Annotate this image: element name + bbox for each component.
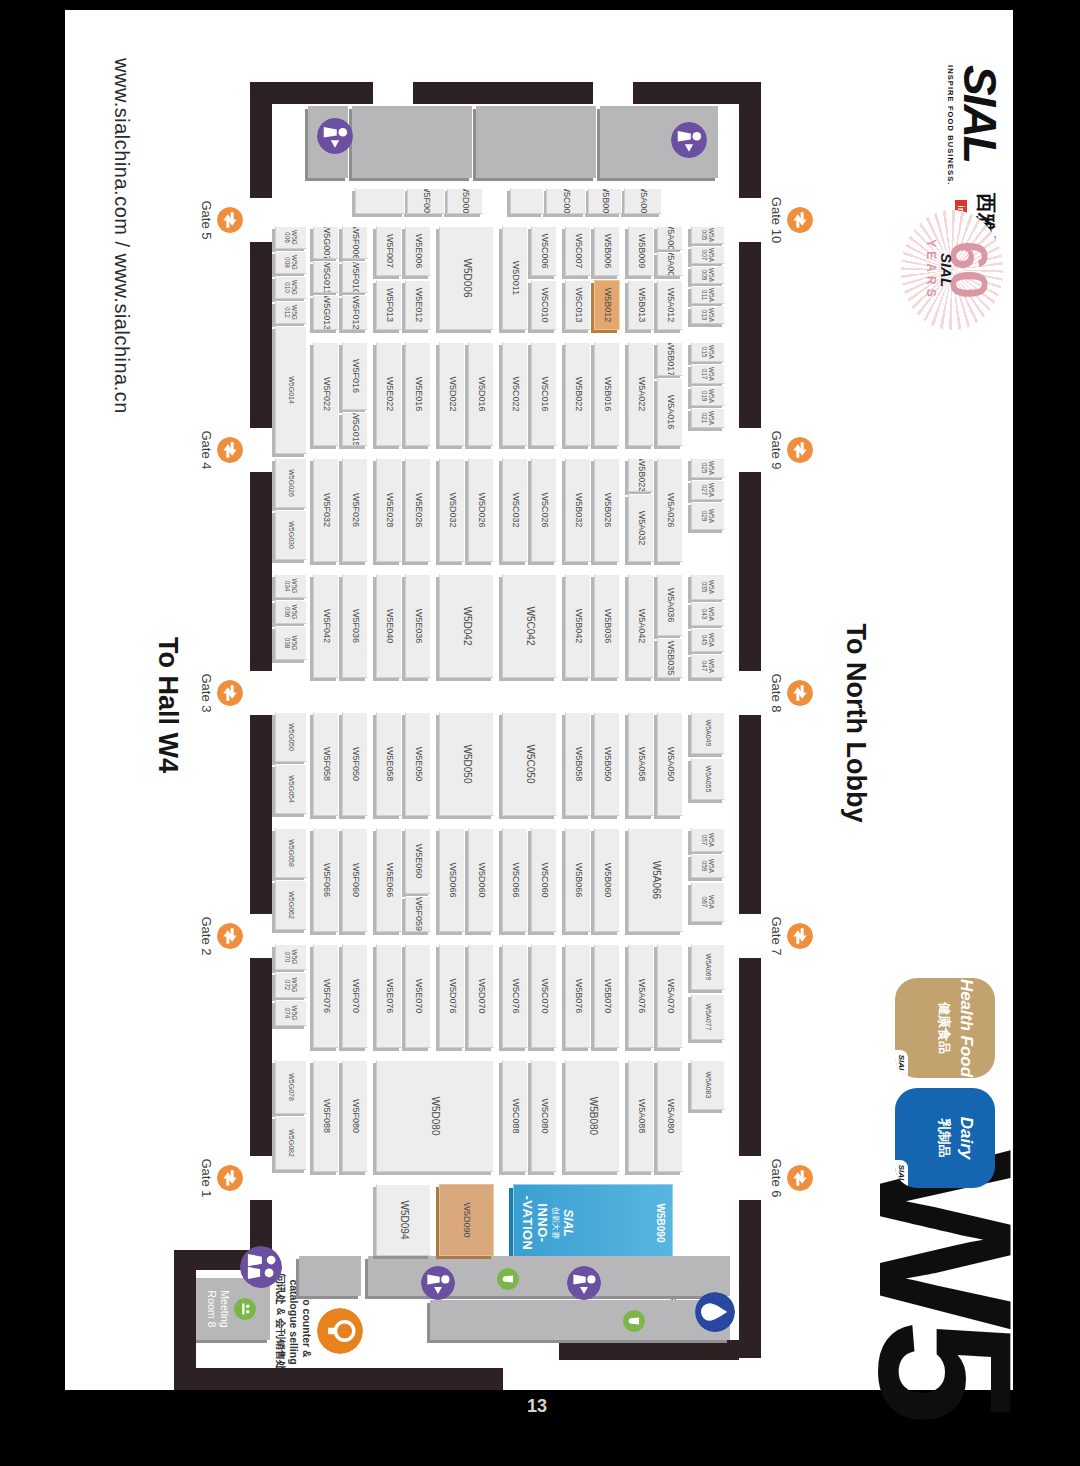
booth-W5A016: W5A016: [657, 378, 683, 446]
booth-W5F050: W5F050: [342, 712, 368, 816]
booth-W5C006: W5C006: [531, 226, 557, 276]
booth-W5A015: W5A015: [691, 342, 725, 362]
booth-W5F036: W5F036: [342, 574, 368, 678]
service-block: [430, 1300, 730, 1340]
gate-label: Gate 4: [199, 430, 214, 469]
booth-W5D066: W5D066: [439, 828, 465, 932]
gate-gate-5: Gate 5: [199, 190, 243, 250]
service-block: [299, 1256, 361, 1296]
innovation-line2: -VATION: [520, 1195, 535, 1250]
gate-gate-7: Gate 7: [769, 906, 813, 966]
booth-W5A066: W5A066: [628, 828, 683, 932]
booth-W5C001: W5C001: [546, 188, 586, 214]
booth-W5G058: W5G058: [275, 828, 307, 878]
booth-W5B026: W5B026: [594, 458, 620, 562]
dairy-cn-label: 乳制品: [935, 1088, 953, 1188]
booth-W5A059: W5A059: [691, 854, 725, 878]
booth-W5F007: W5F007: [376, 226, 402, 276]
wall-segment: [739, 472, 761, 671]
booth-W5F010: W5F010: [342, 261, 368, 293]
booth-W5A042: W5A042: [628, 574, 654, 678]
gate-label: Gate 6: [769, 1158, 784, 1197]
booth-W5F070: W5F070: [342, 944, 368, 1048]
booth-W5E016: W5E016: [405, 342, 431, 446]
meeting-room-label: Meeting Room 8: [206, 1283, 230, 1335]
booth-W5A011: W5A011: [691, 286, 725, 304]
restroom-person-icon: [421, 1266, 455, 1300]
booth-W5F022: W5F022: [313, 342, 339, 446]
wall-segment: [413, 82, 593, 104]
booth-W5C050: W5C050: [502, 712, 557, 816]
gate-swap-icon: [787, 680, 813, 706]
booth-W5F066: W5F066: [313, 828, 339, 932]
booth-W5A035: W5A035: [691, 574, 725, 600]
anniversary-sial: SIAL: [938, 210, 955, 330]
booth-W5A013: W5A013: [691, 306, 725, 324]
booth-W5G036: W5G036: [275, 600, 307, 624]
booth-W5D016: W5D016: [468, 342, 494, 446]
booth-W5E058: W5E058: [376, 712, 402, 816]
booth-W5G015: W5G015: [342, 412, 368, 446]
booth-W5C060: W5C060: [531, 828, 557, 932]
booth-W5A027: W5A027: [691, 480, 725, 500]
booth-W5C010: W5C010: [531, 280, 557, 330]
service-block: [352, 106, 472, 178]
gate-gate-3: Gate 3: [199, 663, 243, 723]
booth-W5E070: W5E070: [405, 944, 431, 1048]
booth-W5F006: W5F006: [342, 226, 368, 259]
booth-W5A017: W5A017: [691, 364, 725, 384]
innovation-sial: SIAL: [561, 1195, 575, 1250]
booth-W5G014: W5G014: [275, 326, 307, 454]
booth-W5G034: W5G034: [275, 574, 307, 598]
wall-segment: [633, 82, 761, 104]
booth-W5G006: W5G006: [275, 226, 307, 249]
dairy-label: Dairy: [957, 1088, 975, 1188]
booth-W5G038: W5G038: [275, 626, 307, 660]
info-counter-bulb-icon: [317, 1308, 363, 1354]
booth-W5F016: W5F016: [342, 342, 368, 410]
booth-W5A012: W5A012: [657, 280, 683, 330]
anniversary-years: YEARS: [924, 210, 938, 330]
to-hall-w4-label: To Hall W4: [152, 585, 183, 825]
snack-bar-icon: [623, 1310, 645, 1332]
website-urls: www.sialchina.com / www.sialchina.cn: [110, 58, 133, 414]
booth-W5D026: W5D026: [468, 458, 494, 562]
booth-W5C007: W5C007: [565, 226, 591, 276]
gate-gate-10: Gate 10: [769, 190, 813, 250]
booth-W5F032: W5F032: [313, 458, 339, 562]
booth-W5B022: W5B022: [565, 342, 591, 446]
booth-W5A021: W5A021: [691, 408, 725, 428]
booth-W5A080: W5A080: [657, 1060, 683, 1172]
booth-W5C013: W5C013: [565, 280, 591, 330]
booth-W5F058: W5F058: [313, 712, 339, 816]
booth-W5G078: W5G078: [275, 1060, 307, 1114]
health-food-cn-label: 健康食品: [935, 978, 953, 1078]
gate-label: Gate 9: [769, 430, 784, 469]
booth-W5D022: W5D022: [439, 342, 465, 446]
booth-W5E026: W5E026: [405, 458, 431, 562]
booth-W5A058: W5A058: [628, 712, 654, 816]
hall-floor-plan: SIAL INSPIRE FOOD BUSINESS. 西雅展 in China…: [65, 10, 1013, 1390]
innovation-line1: INNO-: [535, 1195, 550, 1250]
gate-swap-icon: [787, 207, 813, 233]
restroom-people-icon: [240, 1246, 282, 1288]
booth-W5A057: W5A057: [691, 828, 725, 852]
booth-W5E036: W5E036: [405, 574, 431, 678]
booth-W5D076: W5D076: [439, 944, 465, 1048]
wall-segment: [250, 1200, 272, 1250]
booth-W5D070: W5D070: [468, 944, 494, 1048]
booth-W5G011: W5G011: [313, 261, 339, 293]
booth-W5E050: W5E050: [405, 712, 431, 816]
booth-W5A069: W5A069: [691, 944, 725, 990]
booth-W5F042: W5F042: [313, 574, 339, 678]
booth-W5D006: W5D006: [439, 226, 494, 330]
booth-W5A070: W5A070: [657, 944, 683, 1048]
booth-W5B017: W5B017: [657, 342, 683, 376]
booth-W5C070: W5C070: [531, 944, 557, 1048]
restroom-person-icon: [317, 118, 353, 154]
health-food-label: Health Food: [957, 978, 975, 1078]
booth-W5B016: W5B016: [594, 342, 620, 446]
booth-W5E076: W5E076: [376, 944, 402, 1048]
sial-notch: SIAL: [895, 1050, 908, 1078]
booth-W5A007: W5A007: [691, 246, 725, 264]
booth-W5F080: W5F080: [342, 1060, 368, 1172]
gate-gate-6: Gate 6: [769, 1148, 813, 1208]
booth-W5G054: W5G054: [275, 764, 307, 814]
service-block: [476, 106, 596, 178]
wall-segment: [250, 958, 272, 1156]
booth-W5A043: W5A043: [691, 602, 725, 626]
gate-swap-icon: [217, 207, 243, 233]
innovation-cn: 创新大赛: [550, 1195, 561, 1250]
gate-swap-icon: [787, 437, 813, 463]
gate-label: Gate 10: [769, 197, 784, 243]
gate-label: Gate 7: [769, 916, 784, 955]
booth-W5E066: W5E066: [376, 828, 402, 932]
booth-W5A006: W5A006: [657, 226, 683, 250]
booth-W5D090: W5D090: [439, 1184, 494, 1256]
booth-W5F060: W5F060: [342, 828, 368, 932]
booth-W5G074: W5G074: [275, 1000, 307, 1026]
booth-W5G012: W5G012: [275, 301, 307, 324]
booth-W5E012: W5E012: [405, 280, 431, 330]
booth-W5G072: W5G072: [275, 972, 307, 998]
booth-W5D060: W5D060: [468, 828, 494, 932]
booth-W5A083: W5A083: [691, 1060, 725, 1110]
booth-W5C076: W5C076: [502, 944, 528, 1048]
gate-swap-icon: [787, 1165, 813, 1191]
gate-label: Gate 3: [199, 673, 214, 712]
booth-W5B032: W5B032: [565, 458, 591, 562]
gate-swap-icon: [787, 923, 813, 949]
gate-label: Gate 2: [199, 916, 214, 955]
booth-W5C042: W5C042: [502, 574, 557, 678]
booth-W5B006: W5B006: [594, 226, 620, 276]
booth-W5B036: W5B036: [594, 574, 620, 678]
booth-W5E006: W5E006: [405, 226, 431, 276]
gate-swap-icon: [217, 437, 243, 463]
booth-W5B013: W5B013: [628, 280, 654, 330]
booth-W5B050: W5B050: [594, 712, 620, 816]
booth-W5A067: W5A067: [691, 882, 725, 922]
gate-label: Gate 5: [199, 200, 214, 239]
booth-W5C032: W5C032: [502, 458, 528, 562]
booth-W5G050: W5G050: [275, 712, 307, 762]
wall-segment: [739, 958, 761, 1156]
wall-segment: [250, 242, 272, 428]
booth-W5C026: W5C026: [531, 458, 557, 562]
booth-W5A029: W5A029: [691, 502, 725, 530]
gate-swap-icon: [217, 923, 243, 949]
booth-W5F059: W5F059: [405, 896, 431, 932]
wall-segment: [739, 242, 761, 428]
booth-W5E022: W5E022: [376, 342, 402, 446]
booth-W5G030: W5G030: [275, 510, 307, 560]
booth-W5C080: W5C080: [531, 1060, 557, 1172]
booth-W5C088: W5C088: [502, 1060, 528, 1172]
booth-W5F026: W5F026: [342, 458, 368, 562]
booth-W5E028: W5E028: [376, 458, 402, 562]
booth-W5A009: W5A009: [691, 266, 725, 284]
page-number: 13: [512, 1396, 562, 1417]
wall-segment: [250, 82, 272, 198]
booth-W5C022: W5C022: [502, 342, 528, 446]
booth-W5B009: W5B009: [628, 226, 654, 276]
booth-W5B001: W5B001: [588, 188, 622, 214]
booth-W5G007: W5G007: [313, 226, 339, 259]
to-north-lobby-label: To North Lobby: [840, 598, 871, 848]
wall-segment: [739, 715, 761, 914]
booth-W5B090-sial-innovation: W5B090 SIAL 创新大赛 INNO- -VATION: [513, 1184, 673, 1262]
booth-blank: [510, 188, 544, 214]
wall-segment: [739, 1200, 761, 1358]
booth-W5B076: W5B076: [565, 944, 591, 1048]
booth-blank: [355, 188, 405, 214]
booth-W5B012: W5B012: [594, 280, 620, 330]
booth-W5B060: W5B060: [594, 828, 620, 932]
booth-W5D042: W5D042: [439, 574, 494, 678]
booth-W5A055: W5A055: [691, 758, 725, 800]
booth-W5D050: W5D050: [439, 712, 494, 816]
booth-W5D002: W5D002: [447, 188, 483, 214]
booth-W5A036: W5A036: [657, 574, 683, 636]
wall-segment: [559, 1340, 739, 1360]
booth-W5G010: W5G010: [275, 276, 307, 299]
booth-W5B066: W5B066: [565, 828, 591, 932]
booth-W5A050: W5A050: [657, 712, 683, 816]
booth-W5B035: W5B035: [657, 638, 683, 678]
booth-W5G008: W5G008: [275, 251, 307, 274]
snack-bar-icon: [497, 1268, 519, 1290]
booth-W5A001: W5A001: [624, 188, 662, 214]
booth-W5C066: W5C066: [502, 828, 528, 932]
gate-label: Gate 8: [769, 673, 784, 712]
booth-W5A032: W5A032: [628, 494, 654, 562]
gate-swap-icon: [217, 1165, 243, 1191]
booth-W5F003: W5F003: [407, 188, 445, 214]
booth-W5A026: W5A026: [657, 458, 683, 562]
booth-W5G026: W5G026: [275, 458, 307, 508]
booth-W5B058: W5B058: [565, 712, 591, 816]
restroom-person-icon: [671, 122, 707, 158]
innovation-booth-id: W5B090: [655, 1204, 666, 1243]
gate-gate-8: Gate 8: [769, 663, 813, 723]
booth-W5A008: W5A008: [657, 252, 683, 276]
gate-gate-4: Gate 4: [199, 420, 243, 480]
booth-W5G062: W5G062: [275, 880, 307, 930]
booth-W5D080: W5D080: [376, 1060, 494, 1172]
booth-W5F013: W5F013: [376, 280, 402, 330]
wall-segment: [250, 472, 272, 671]
sial-60-years-badge: 60 SIAL YEARS: [901, 210, 1003, 330]
booth-W5E060: W5E060: [405, 828, 431, 894]
booth-W5A088: W5A088: [628, 1060, 654, 1172]
booth-W5B023: W5B023: [628, 458, 654, 492]
booth-W5A019: W5A019: [691, 386, 725, 406]
meeting-room-icon-slot: [234, 1298, 256, 1320]
booth-W5A045: W5A045: [691, 628, 725, 652]
booth-W5A047: W5A047: [691, 654, 725, 678]
booth-W5G082: W5G082: [275, 1116, 307, 1170]
gate-gate-1: Gate 1: [199, 1148, 243, 1208]
health-food-badge: Health Food 健康食品 SIAL: [895, 978, 995, 1078]
wall-segment: [250, 715, 272, 914]
booth-W5A049: W5A049: [691, 712, 725, 754]
booth-W5A022: W5A022: [628, 342, 654, 446]
booth-W5G070: W5G070: [275, 944, 307, 970]
booth-W5A077: W5A077: [691, 994, 725, 1040]
booth-W5E040: W5E040: [376, 574, 402, 678]
booth-W5F076: W5F076: [313, 944, 339, 1048]
booth-W5F088: W5F088: [313, 1060, 339, 1172]
booth-W5B080: W5B080: [565, 1060, 620, 1172]
catalog-page: { "frame": { "page_number": "13" }, "hea…: [0, 0, 1080, 1466]
booth-W5A025: W5A025: [691, 458, 725, 478]
booth-W5D032: W5D032: [439, 458, 465, 562]
wall-segment: [174, 1368, 503, 1390]
gate-gate-2: Gate 2: [199, 906, 243, 966]
booth-W5A076: W5A076: [628, 944, 654, 1048]
booth-W5D011: W5D011: [502, 226, 528, 330]
booth-W5G013: W5G013: [313, 295, 339, 330]
booth-W5C016: W5C016: [531, 342, 557, 446]
gate-label: Gate 1: [199, 1158, 214, 1197]
washing-area-drop-icon: [695, 1292, 735, 1332]
booth-W5B070: W5B070: [594, 944, 620, 1048]
gate-swap-icon: [217, 680, 243, 706]
dairy-badge: Dairy 乳制品 SIAL: [895, 1088, 995, 1188]
gate-gate-9: Gate 9: [769, 420, 813, 480]
booth-W5A005: W5A005: [691, 226, 725, 244]
hall-name-w5: W5: [860, 1150, 1031, 1415]
booth-W5F012: W5F012: [342, 295, 368, 330]
booth-W5D094: W5D094: [376, 1184, 431, 1256]
restroom-person-icon: [567, 1266, 601, 1300]
booth-W5B042: W5B042: [565, 574, 591, 678]
